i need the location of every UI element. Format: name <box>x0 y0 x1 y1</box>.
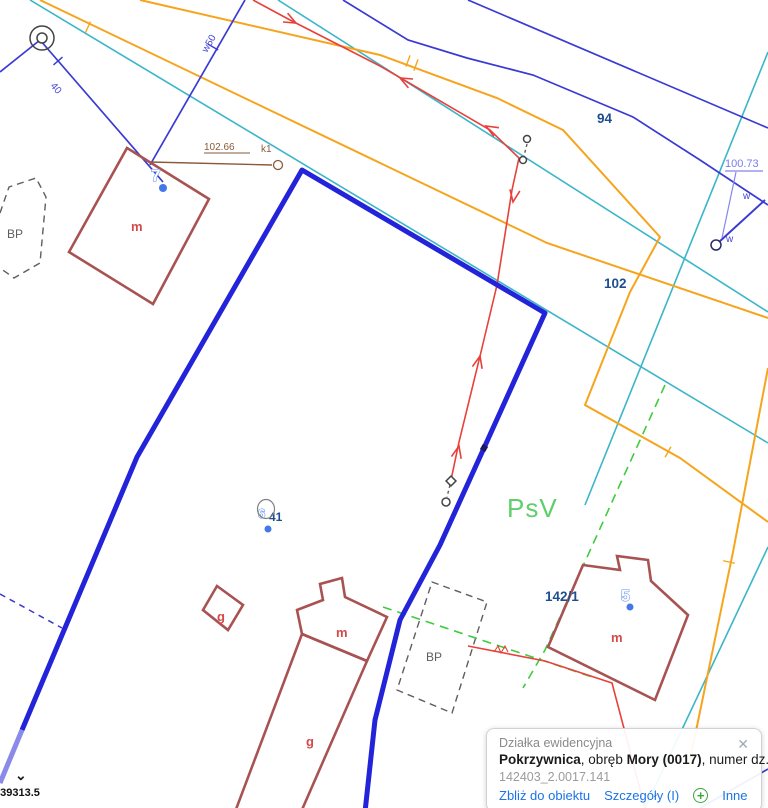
w-point-symbol <box>711 240 721 250</box>
parcel-subject-line: Pokrzywnica, obręb Mory (0017), numer dz… <box>499 751 749 769</box>
utility-lines-orange <box>40 0 768 760</box>
building-m4 <box>548 556 688 700</box>
manhole-symbol-inner <box>37 33 47 43</box>
pipe-40-label: 40 <box>48 81 64 97</box>
district-name: Mory (0017) <box>627 752 702 767</box>
more-link[interactable]: Inne <box>722 788 747 803</box>
popup-title: Działka ewidencyjna <box>499 736 612 751</box>
svg-text:g: g <box>306 734 314 749</box>
measurement-leader-lines <box>722 171 763 238</box>
address-5: 5 <box>621 588 630 605</box>
details-link[interactable]: Szczegóły (I) <box>604 788 679 803</box>
parcel-label-142-1: 142/1 <box>545 589 579 604</box>
building-function-labels: m m g g m <box>131 219 623 749</box>
parcel-info-popup: Działka ewidencyjna ✕ Pokrzywnica, obręb… <box>486 728 762 808</box>
w-upper-label: w <box>742 191 751 202</box>
chevron-down-icon[interactable]: ⌄ <box>15 769 27 781</box>
map-viewer: 102.66 k1 m m g g m <box>0 0 768 808</box>
address-number-labels: 7 5 6 <box>151 166 630 605</box>
subject-sep1: , obręb <box>581 752 627 767</box>
parcel-label-102: 102 <box>604 276 627 291</box>
bp-labels: BP BP <box>7 227 442 664</box>
svg-text:g: g <box>217 609 225 624</box>
bp-left-label: BP <box>7 227 23 241</box>
add-circle-icon[interactable]: + <box>693 788 708 803</box>
map-canvas[interactable]: 102.66 k1 m m g g m <box>0 0 768 808</box>
bp-bottom-label: BP <box>426 650 442 664</box>
vertex-diamond <box>446 476 456 486</box>
address-7: 7 <box>151 166 160 185</box>
village-name: Pokrzywnica <box>499 752 581 767</box>
parcel-boundary-lines <box>30 0 768 808</box>
svg-text:m: m <box>336 625 348 640</box>
bp-dashed-outlines <box>0 144 527 713</box>
close-icon[interactable]: ✕ <box>737 737 749 751</box>
svg-text:m: m <box>131 219 143 234</box>
w-lower-label: w <box>725 234 734 245</box>
parcel-identifier: 142403_2.0017.141 <box>499 769 749 785</box>
svg-text:m: m <box>611 630 623 645</box>
dashed-boundary-blue <box>0 594 62 628</box>
zoom-to-object-link[interactable]: Zbliż do obiektu <box>499 788 590 803</box>
point-label-k1: k1 <box>261 144 272 155</box>
pipe-w50-label: w50 <box>200 33 219 56</box>
measurement-line-brown: 102.66 k1 <box>150 142 283 170</box>
psv-label: PsV <box>507 493 558 523</box>
subject-sep2: , numer dz. <box>702 752 768 767</box>
building-g-long <box>235 634 367 808</box>
parcel-label-94: 94 <box>597 111 613 126</box>
distance-100-73-label: 100.73 <box>725 158 759 170</box>
pipe-annotations: 40 w50 w w <box>48 33 751 245</box>
distance-label: 102.66 <box>204 142 235 153</box>
building-m2 <box>297 578 387 661</box>
land-use-dashed-lines <box>383 385 665 688</box>
coordinate-readout: 639313.5 <box>0 787 40 799</box>
